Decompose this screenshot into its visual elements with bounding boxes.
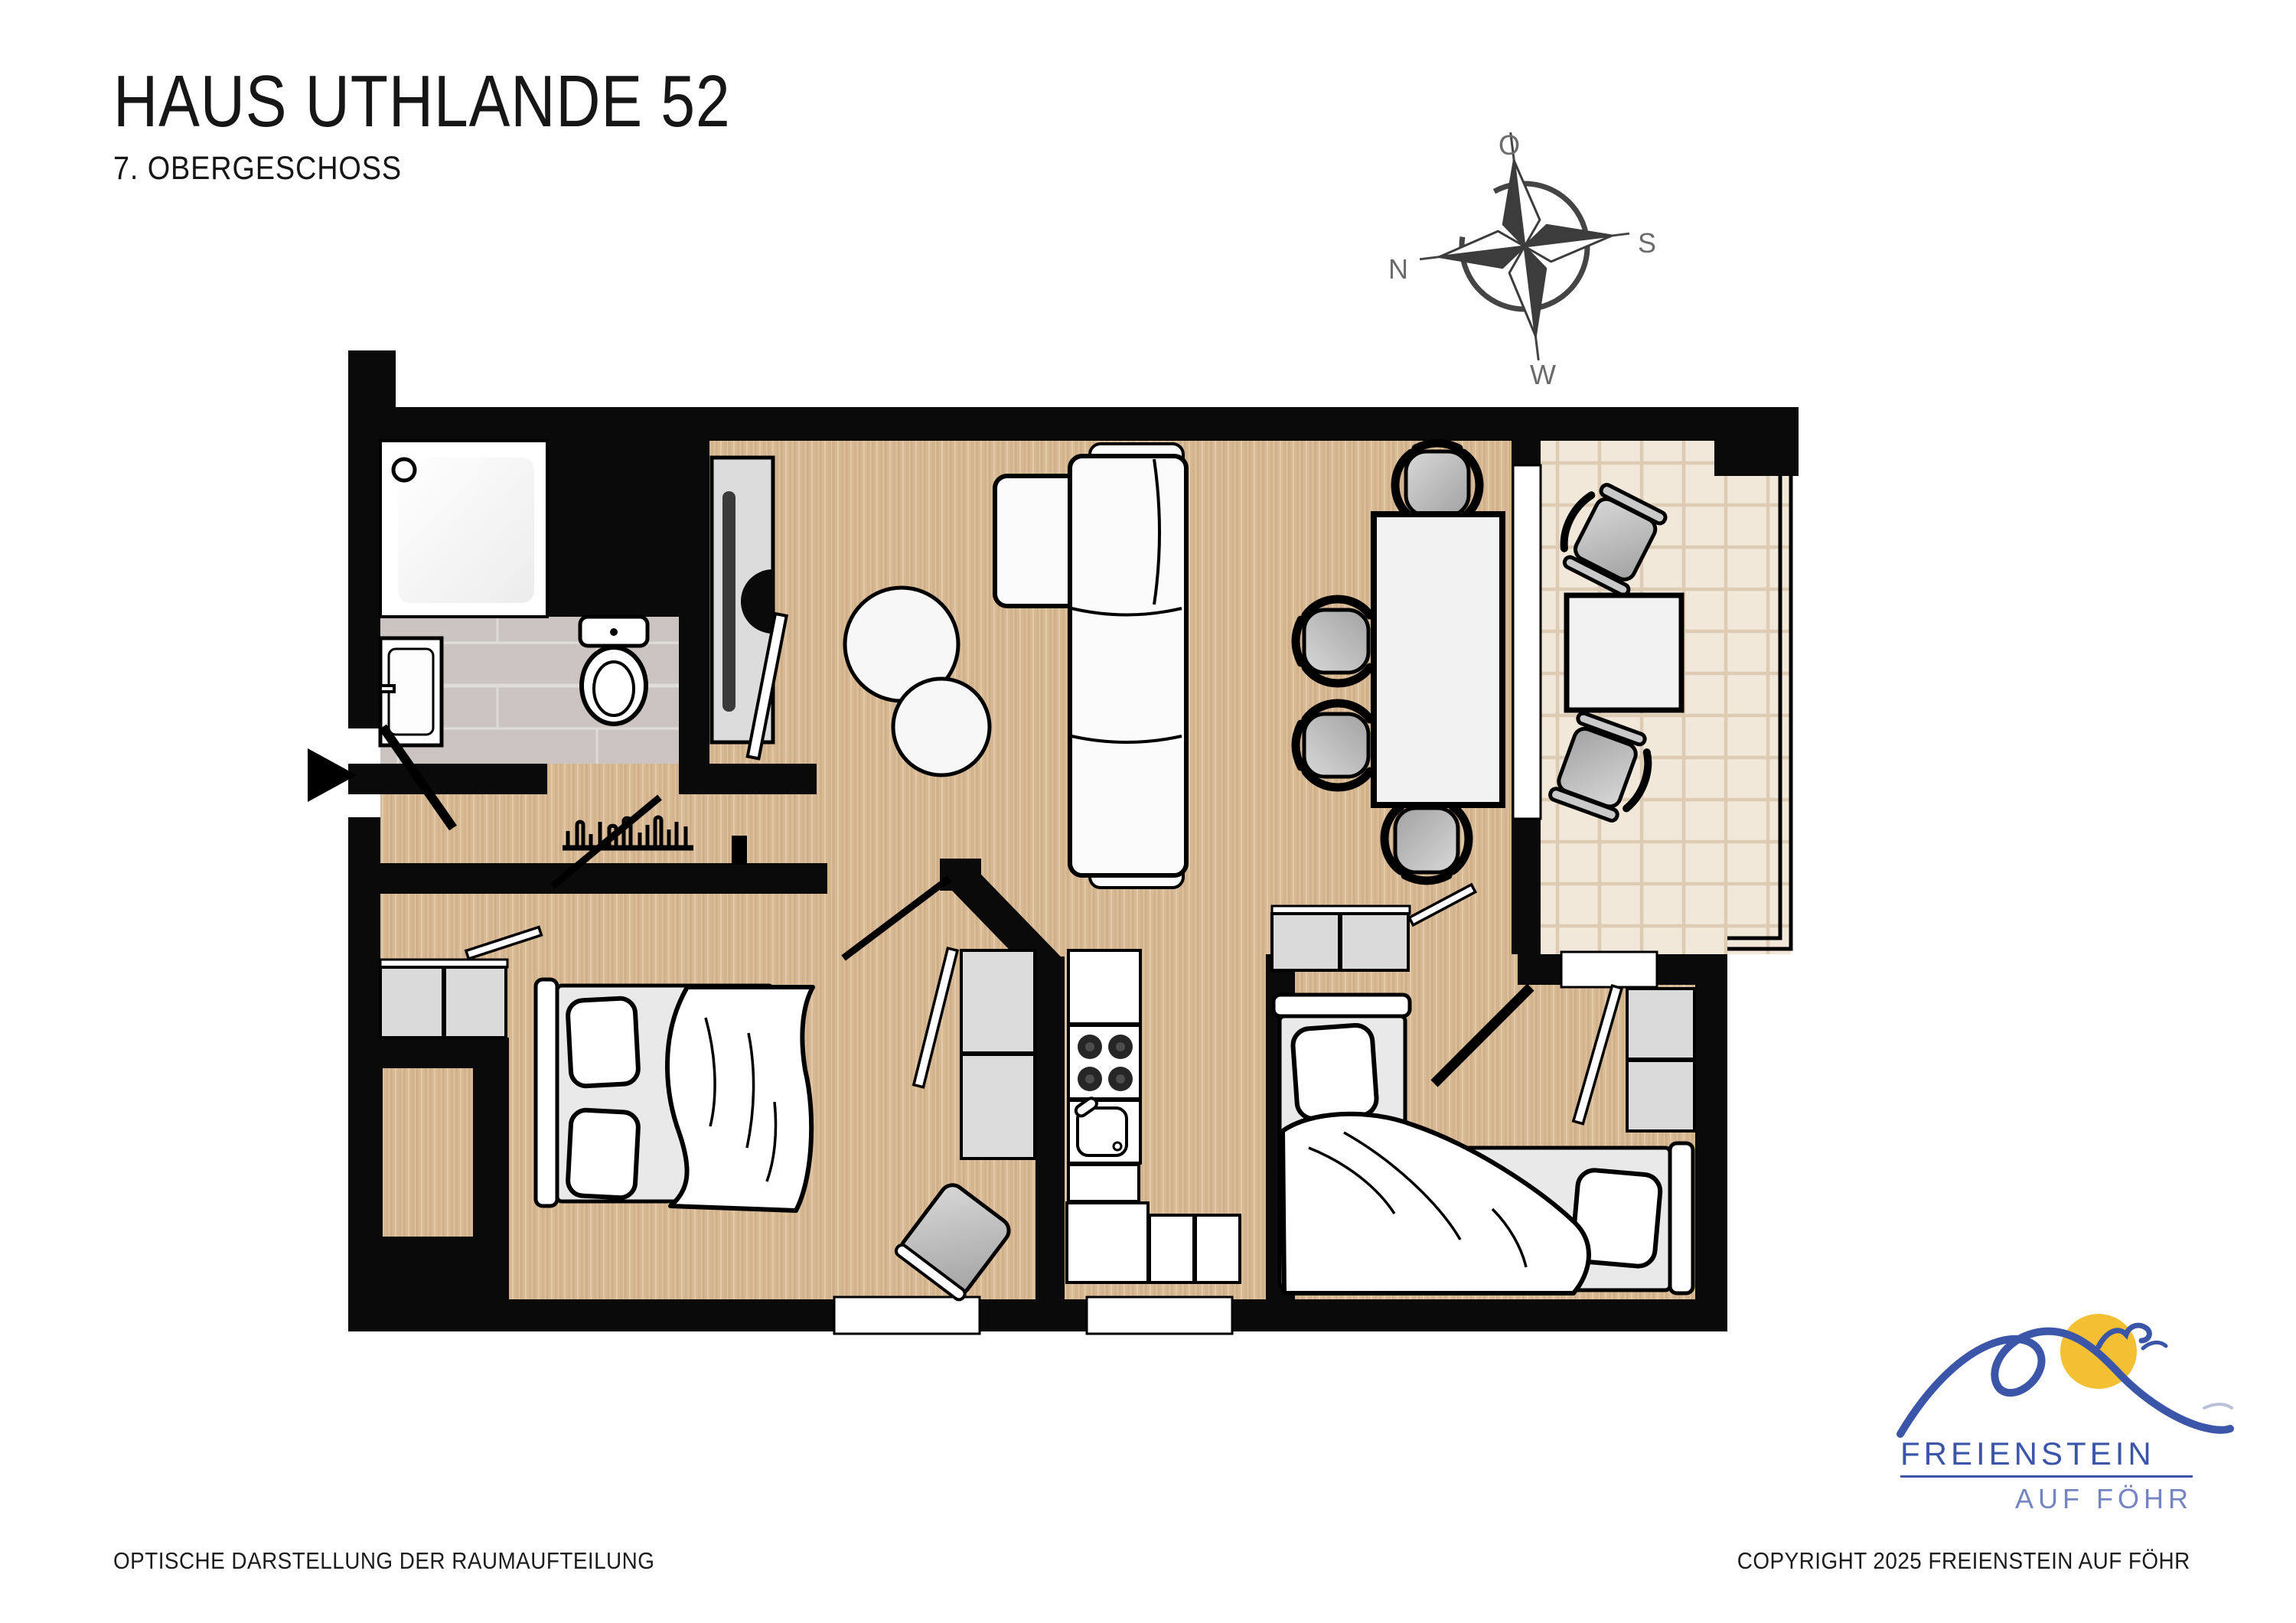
stove <box>1068 1025 1140 1099</box>
round-side-table <box>893 679 990 775</box>
compass-label-left: N <box>1388 253 1408 285</box>
logo-tagline: AUF FÖHR <box>1900 1483 2193 1515</box>
footer-disclaimer: OPTISCHE DARSTELLUNG DER RAUMAUFTEILUNG <box>113 1547 654 1575</box>
compass-label-top: O <box>1499 129 1520 161</box>
balcony-table <box>1567 595 1681 710</box>
compass-rose-icon <box>1406 119 1644 373</box>
toilet <box>580 617 647 724</box>
compass-label-bottom: W <box>1530 359 1556 390</box>
dining-chair <box>1296 703 1370 787</box>
shower <box>380 441 547 617</box>
logo-wordmark: FREIENSTEIN <box>1900 1436 2193 1472</box>
logo-rule <box>1900 1475 2193 1478</box>
sliding-balcony-door <box>1513 465 1541 819</box>
page-title: HAUS UTHLANDE 52 <box>113 60 731 144</box>
compass-label-right: S <box>1638 227 1656 259</box>
floorplan-svg: O S W N <box>0 0 2296 1623</box>
footer-copyright: COPYRIGHT 2025 FREIENSTEIN AUF FÖHR <box>1737 1547 2190 1575</box>
dining-chair <box>1395 443 1479 517</box>
dining-chair <box>1384 807 1469 881</box>
page-subtitle: 7. OBERGESCHOSS <box>113 150 402 187</box>
window-bedroom-2 <box>1561 952 1657 987</box>
logo-graphic <box>1900 1314 2232 1434</box>
dining-chair <box>1296 599 1370 683</box>
window-bottom-1 <box>834 1297 980 1334</box>
double-bed <box>536 979 813 1211</box>
shower-drain-icon <box>393 459 415 481</box>
window-bottom-2 <box>1087 1297 1232 1334</box>
duvet <box>667 987 813 1211</box>
page: O S W N HAUS UTHLANDE 52 7. OBERGESCHOSS… <box>0 0 2296 1623</box>
dining-table <box>1374 514 1502 805</box>
